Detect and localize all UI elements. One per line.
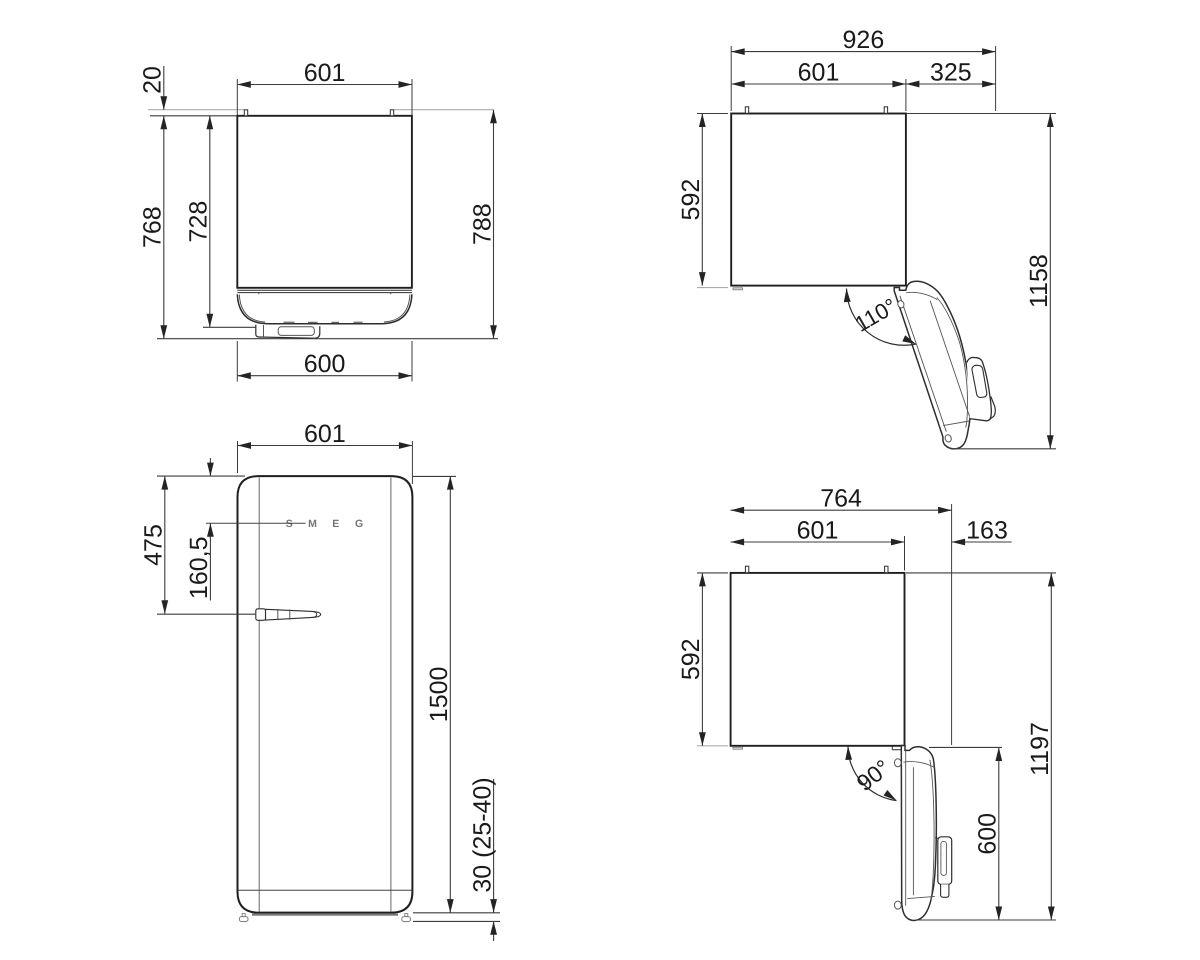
- svg-text:S: S: [286, 518, 293, 530]
- svg-text:475: 475: [140, 524, 168, 566]
- svg-text:788: 788: [468, 203, 496, 245]
- svg-text:30 (25-40): 30 (25-40): [468, 777, 496, 892]
- svg-text:764: 764: [820, 485, 862, 513]
- svg-text:728: 728: [185, 201, 213, 243]
- svg-text:1197: 1197: [1026, 722, 1054, 776]
- svg-text:926: 926: [843, 26, 885, 54]
- svg-text:1158: 1158: [1025, 254, 1053, 308]
- svg-text:90°: 90°: [852, 754, 895, 796]
- svg-text:601: 601: [304, 420, 346, 448]
- svg-text:110°: 110°: [851, 293, 901, 337]
- svg-text:325: 325: [930, 59, 972, 87]
- svg-text:20: 20: [139, 66, 167, 94]
- svg-text:E: E: [332, 518, 339, 530]
- svg-text:601: 601: [797, 517, 839, 545]
- svg-text:1500: 1500: [425, 667, 453, 723]
- svg-text:592: 592: [677, 179, 705, 221]
- svg-text:163: 163: [966, 517, 1008, 545]
- svg-text:601: 601: [798, 59, 840, 87]
- svg-text:M: M: [308, 518, 317, 530]
- svg-text:768: 768: [139, 206, 167, 248]
- svg-text:592: 592: [677, 638, 705, 680]
- svg-text:160,5: 160,5: [185, 537, 213, 600]
- svg-text:601: 601: [304, 59, 346, 87]
- svg-text:600: 600: [974, 813, 1002, 855]
- svg-text:600: 600: [304, 350, 346, 378]
- svg-text:G: G: [355, 518, 363, 530]
